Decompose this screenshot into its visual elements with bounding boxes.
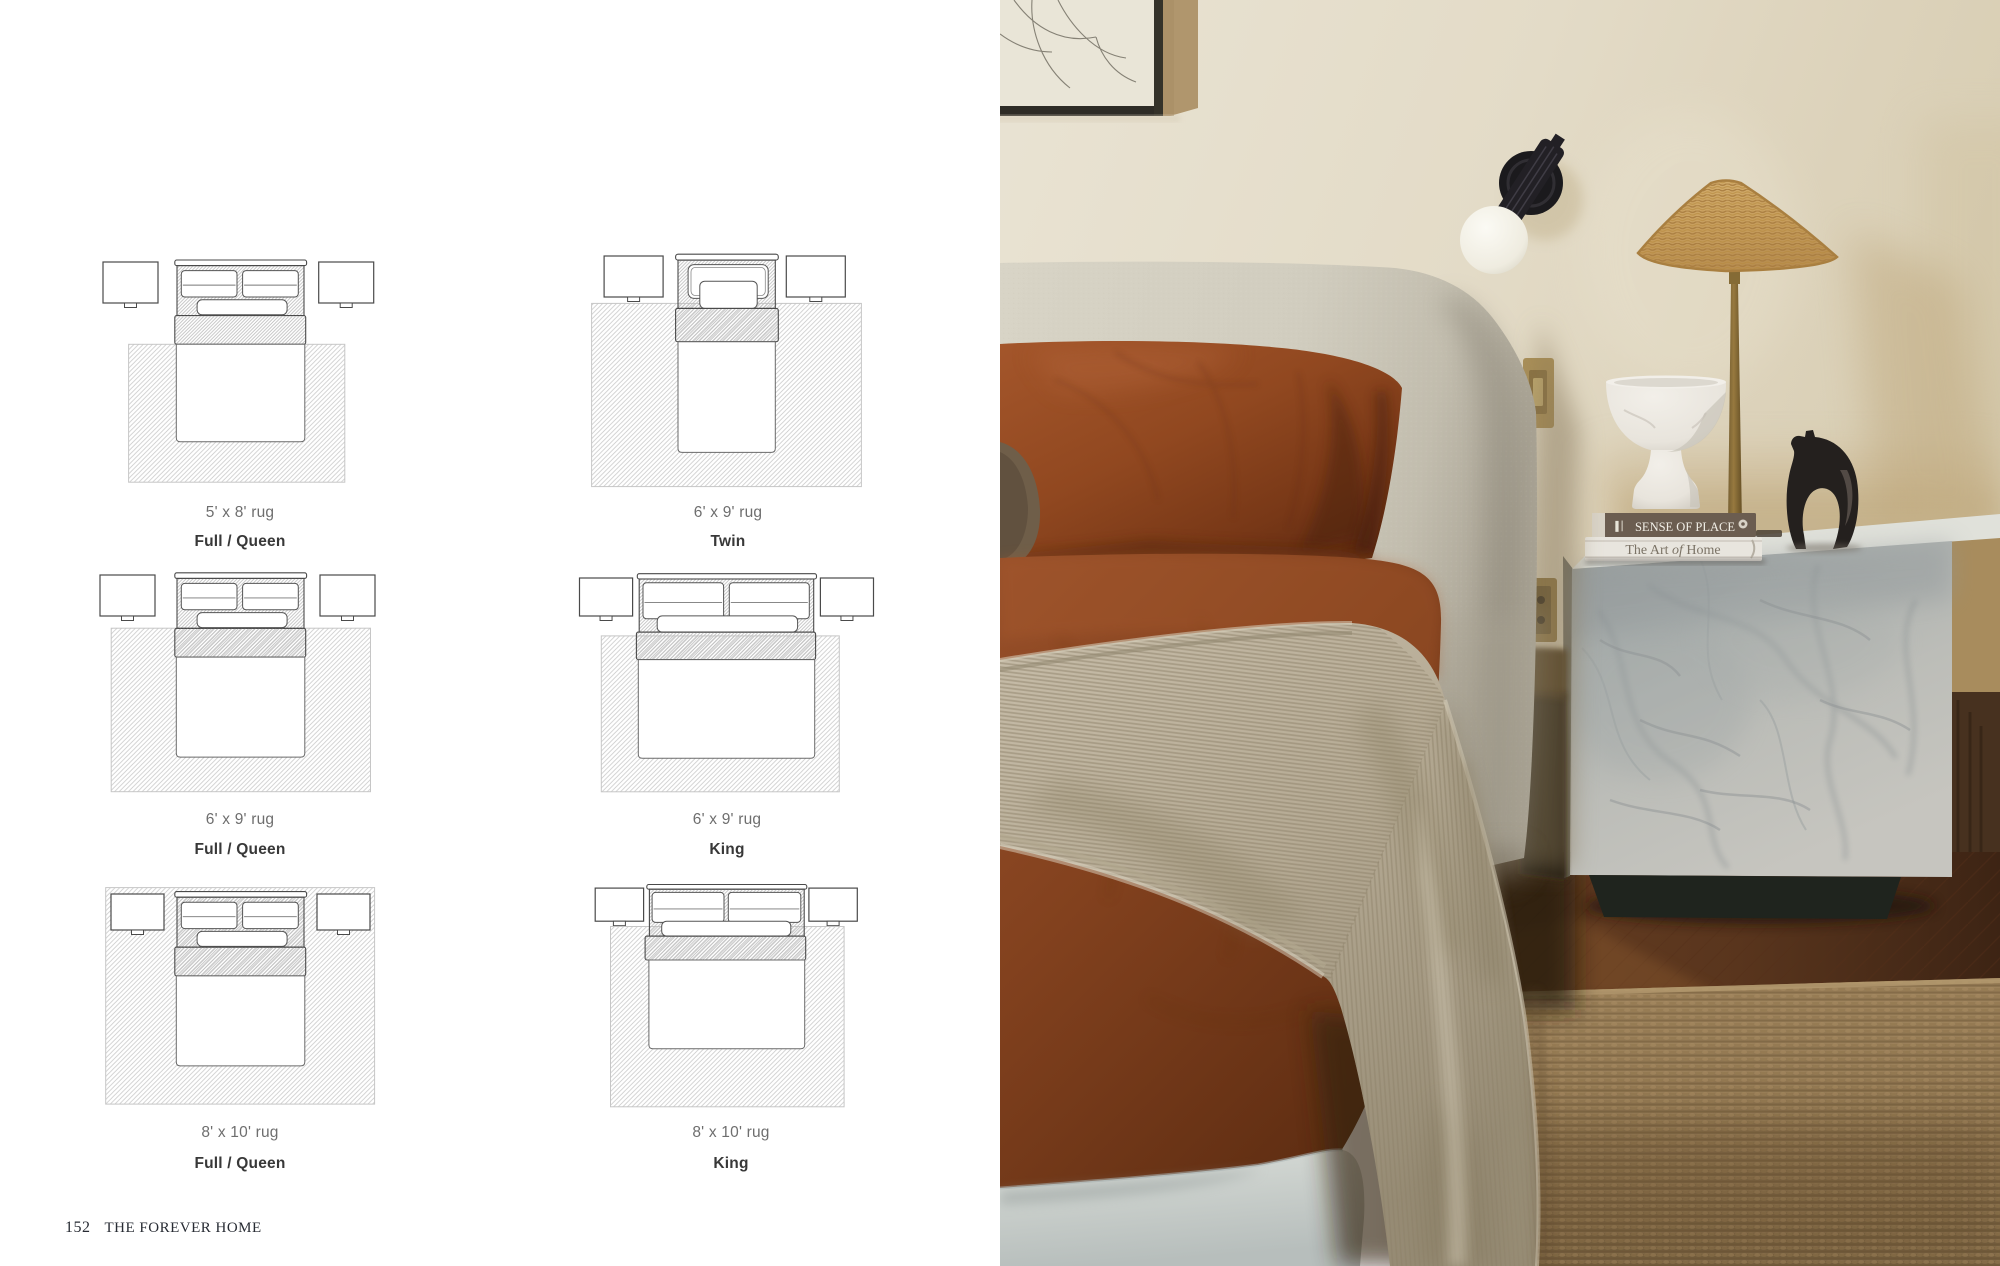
svg-text:▌▏: ▌▏ — [1615, 520, 1628, 532]
svg-text:The Art of Home: The Art of Home — [1625, 543, 1720, 558]
svg-text:SENSE OF PLACE: SENSE OF PLACE — [1635, 520, 1735, 534]
